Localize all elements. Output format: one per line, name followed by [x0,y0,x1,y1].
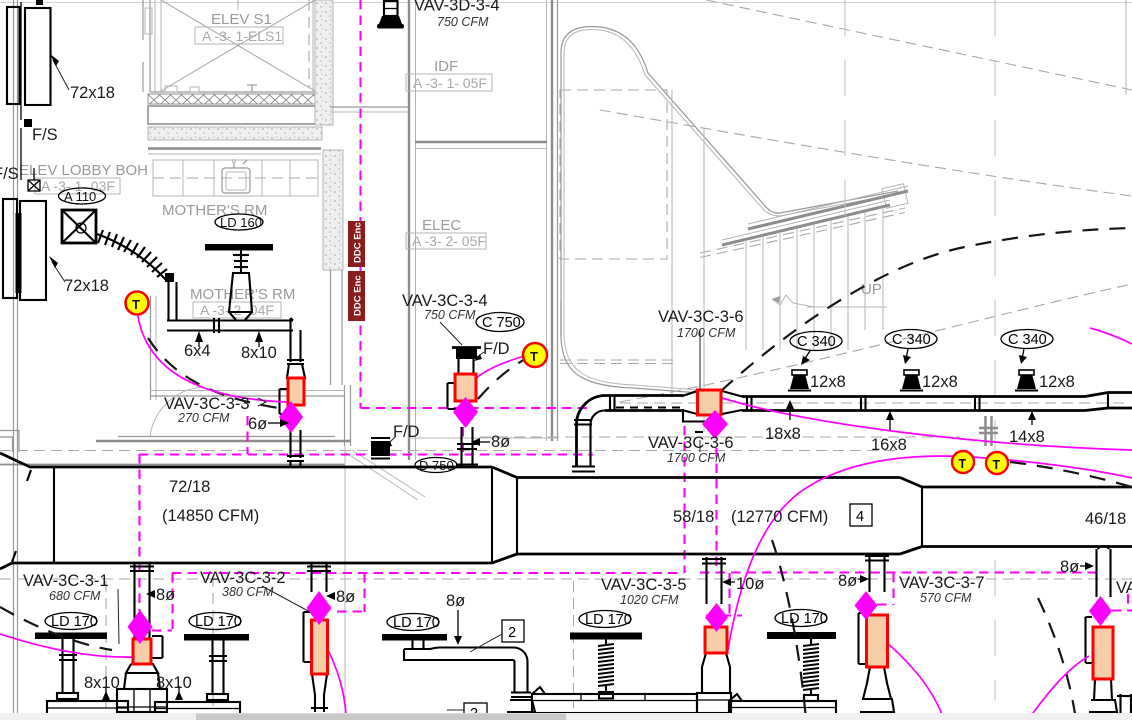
svg-text:VAV-3C-3-5: VAV-3C-3-5 [601,576,687,594]
svg-text:F/S: F/S [32,126,58,144]
svg-text:16x8: 16x8 [871,436,907,454]
svg-text:10ø: 10ø [736,575,764,593]
svg-text:VAV-3C-3-6: VAV-3C-3-6 [658,308,744,326]
svg-text:570 CFM: 570 CFM [920,591,972,605]
svg-text:6x4: 6x4 [184,342,211,360]
svg-text:2: 2 [508,625,516,641]
svg-text:750 CFM: 750 CFM [437,15,489,29]
svg-text:8x10: 8x10 [156,674,192,692]
svg-text:C 340: C 340 [797,334,836,350]
svg-text:4: 4 [856,509,864,525]
svg-text:8x10: 8x10 [84,674,120,692]
svg-text:LD 170: LD 170 [585,612,632,628]
svg-text:72/18: 72/18 [169,478,210,496]
svg-text:6ø: 6ø [248,415,267,433]
svg-text:LD 160: LD 160 [220,215,262,230]
svg-text:VA: VA [1116,579,1132,597]
svg-text:A -3- 2- 05F: A -3- 2- 05F [412,233,486,249]
svg-text:F/D: F/D [393,423,420,441]
svg-text:72x18: 72x18 [70,84,115,102]
svg-text:T: T [530,349,538,364]
svg-text:ELEV LOBBY BOH: ELEV LOBBY BOH [19,162,148,179]
svg-text:8ø: 8ø [838,572,857,590]
svg-text:DDC Enc: DDC Enc [353,275,364,316]
svg-text:F/D: F/D [483,340,510,358]
svg-text:8ø: 8ø [336,588,355,606]
svg-text:(14850 CFM): (14850 CFM) [162,507,259,525]
svg-text:680 CFM: 680 CFM [49,589,101,603]
svg-text:14x8: 14x8 [1009,428,1045,446]
svg-text:8ø: 8ø [1060,558,1079,576]
svg-text:A 110: A 110 [64,189,96,204]
svg-text:A -3- 2- 04F: A -3- 2- 04F [200,302,274,318]
svg-text:F/S: F/S [0,165,19,183]
svg-text:A -3- 1- 05F: A -3- 1- 05F [413,75,487,91]
svg-text:IDF: IDF [434,58,458,75]
svg-text:46/18: 46/18 [1085,510,1126,528]
svg-text:VAV-3C-3-7: VAV-3C-3-7 [899,574,985,592]
svg-text:D 750: D 750 [419,458,454,473]
svg-text:72x18: 72x18 [64,277,109,295]
svg-text:12x8: 12x8 [810,373,846,391]
svg-text:12x8: 12x8 [1039,373,1075,391]
svg-text:C 340: C 340 [892,332,931,348]
svg-text:8x10: 8x10 [241,344,277,362]
svg-text:VAV-3C-3-6: VAV-3C-3-6 [648,434,734,452]
svg-text:UP: UP [861,281,882,298]
svg-text:T: T [959,457,967,471]
svg-text:LD 170: LD 170 [781,611,828,627]
svg-text:MOTHER'S RM: MOTHER'S RM [190,286,295,303]
svg-text:T: T [132,297,140,312]
svg-text:8ø: 8ø [156,586,175,604]
svg-text:58/18: 58/18 [673,508,714,526]
svg-text:LD 170: LD 170 [51,614,98,630]
svg-text:LD 170: LD 170 [393,615,440,631]
svg-text:18x8: 18x8 [765,425,801,443]
svg-text:1700 CFM: 1700 CFM [667,451,726,465]
svg-text:8ø: 8ø [491,433,510,451]
svg-text:T: T [993,458,1001,472]
svg-text:C 750: C 750 [482,315,521,331]
svg-text:1020 CFM: 1020 CFM [620,593,679,607]
svg-text:A -3- 1-ELS1: A -3- 1-ELS1 [202,28,282,44]
svg-text:ELEC: ELEC [422,217,461,234]
svg-text:LD 170: LD 170 [195,614,242,630]
svg-text:270 CFM: 270 CFM [177,411,230,425]
svg-text:DDC Enc: DDC Enc [353,222,364,263]
svg-text:(12770 CFM): (12770 CFM) [731,508,828,526]
svg-text:C 340: C 340 [1008,332,1047,348]
svg-text:VAV-3C-3-1: VAV-3C-3-1 [23,572,109,590]
svg-text:ELEV S1: ELEV S1 [211,11,272,28]
svg-text:1700 CFM: 1700 CFM [677,326,736,340]
svg-text:12x8: 12x8 [922,373,958,391]
svg-text:VAV-3D-3-4: VAV-3D-3-4 [414,0,500,15]
svg-text:750 CFM: 750 CFM [424,308,476,322]
svg-text:8ø: 8ø [446,592,465,610]
svg-text:380 CFM: 380 CFM [222,585,274,599]
